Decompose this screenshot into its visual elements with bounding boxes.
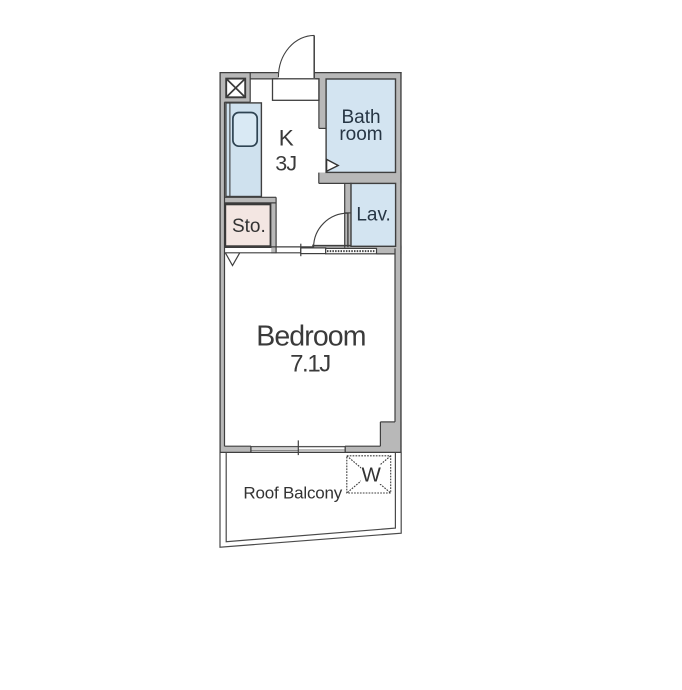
svg-text:K: K [279, 125, 294, 150]
svg-text:Lav.: Lav. [356, 204, 391, 225]
svg-text:Sto.: Sto. [232, 216, 266, 237]
svg-text:room: room [339, 124, 382, 145]
svg-text:Roof Balcony: Roof Balcony [243, 483, 342, 502]
svg-text:W: W [362, 464, 382, 487]
svg-text:Bedroom: Bedroom [256, 321, 365, 353]
svg-text:7.1J: 7.1J [290, 351, 330, 378]
svg-text:3J: 3J [275, 152, 296, 176]
